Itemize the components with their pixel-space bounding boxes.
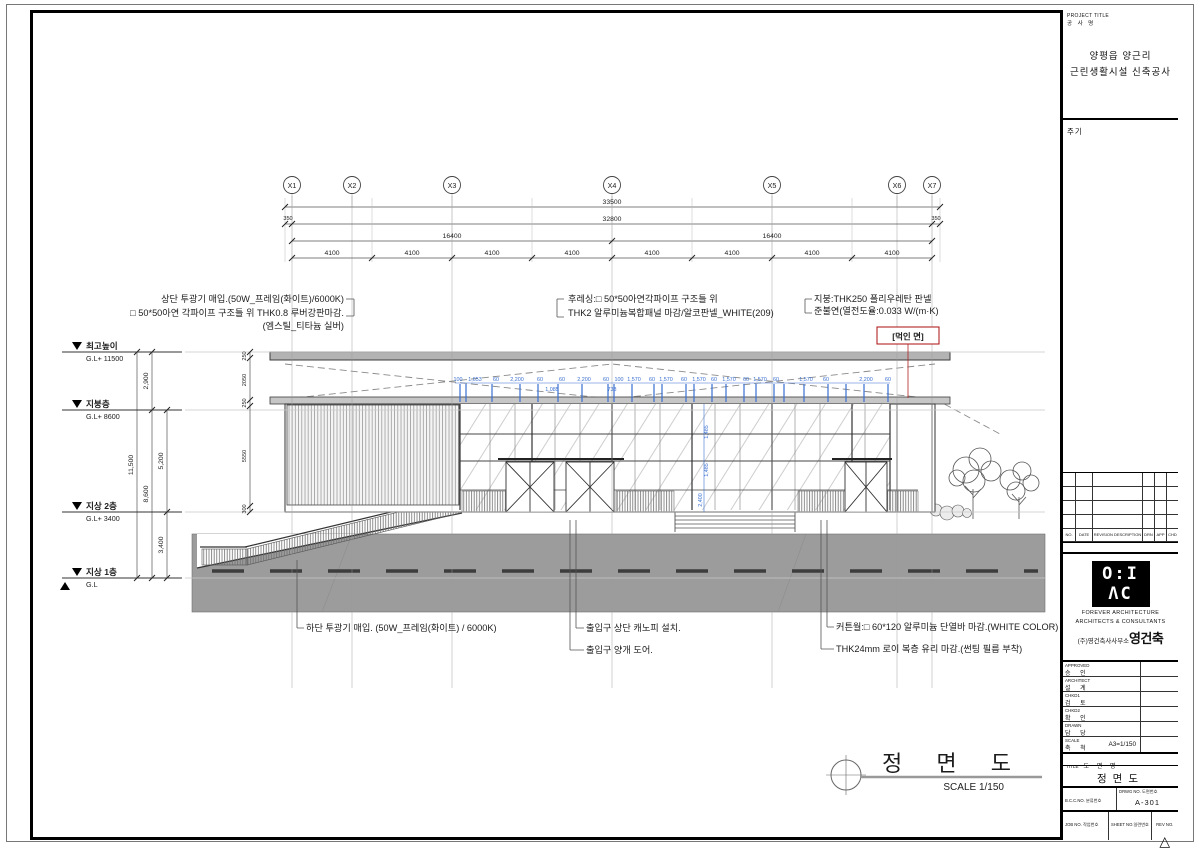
- level-elevation: G.L: [86, 580, 98, 589]
- mullion-dim: 60: [493, 377, 499, 383]
- project-name-line1: 양평읍 양근리: [1067, 49, 1174, 65]
- mullion-dim: 100: [454, 377, 463, 383]
- annotation-text: 커튼월:□ 60*120 알루미늄 단열바 마감.(WHITE COLOR): [836, 621, 1058, 632]
- annotation-text: 상단 투광기 매입.(50W_프레임(화이트)/6000K): [161, 293, 344, 304]
- annotation-text: THK24mm 로이 복층 유리 마감.(썬팅 필름 부착): [836, 643, 1022, 654]
- level-name: 최고높이: [86, 340, 118, 351]
- mullion-dim: 60: [885, 377, 891, 383]
- signoff-architect: ARCHITECT설 계: [1063, 677, 1178, 692]
- grid-bubble-label: X7: [928, 181, 937, 190]
- signoff-chkd1: CHKD1검 토: [1063, 692, 1178, 707]
- title-block: PROJECT TITLE 공 사 명 양평읍 양근리 근린생활시설 신축공사 …: [1060, 10, 1178, 840]
- rev-col-chd: CHD: [1167, 529, 1178, 542]
- highlight-red-box: [먹인 면]: [877, 327, 939, 398]
- rev-col-app: APP: [1155, 529, 1167, 542]
- signoff-kr: 검 토: [1065, 698, 1138, 707]
- job-label-en: JOB NO.: [1065, 822, 1082, 827]
- annotation-text: (엠스틸_티타늄 실버): [263, 320, 344, 331]
- dim-bay: 4100: [564, 250, 579, 257]
- dim-bay: 4100: [884, 250, 899, 257]
- dim-total: 33500: [603, 199, 622, 206]
- dim-bay: 4100: [644, 250, 659, 257]
- dim-parapet-left: 350: [283, 216, 292, 222]
- mullion-dim: 2,200: [577, 377, 591, 383]
- firm-logotype-kr: 영건축: [1129, 631, 1163, 646]
- vertical-dim: 2,400: [698, 493, 704, 507]
- notes-cell: 주기: [1063, 122, 1178, 470]
- drwg-label-en: DRWG NO.: [1119, 789, 1141, 794]
- grid-bubble-label: X1: [288, 181, 297, 190]
- level-name: 지붕층: [86, 398, 110, 409]
- signoff-kr: 확 인: [1065, 713, 1138, 722]
- mullion-dim-lower: 733: [608, 387, 617, 393]
- title-label-row: TITLE도 면 명: [1063, 752, 1178, 766]
- mullion-dim: 60: [537, 377, 543, 383]
- revision-table: NO. DATE REVISION DESCRIPTION DRN APP CH…: [1063, 472, 1178, 543]
- dim-bay: 4100: [804, 250, 819, 257]
- entry-stairs: [675, 512, 795, 532]
- sheet-label-kr: 일련번호: [1134, 822, 1149, 827]
- job-label-kr: 작업번호: [1083, 822, 1098, 827]
- drwg-label-kr: 도면번호: [1142, 789, 1157, 794]
- mullion-dim: 100: [615, 377, 624, 383]
- dim-small: 5550: [242, 450, 248, 462]
- dim-bay: 4100: [724, 250, 739, 257]
- level-elevation: G.L+ 8600: [86, 412, 120, 421]
- dim-bay: 4100: [484, 250, 499, 257]
- firm-logo-top: O:I: [1092, 564, 1150, 584]
- project-name: 양평읍 양근리 근린생활시설 신축공사: [1067, 49, 1174, 81]
- sheet-no-cell: SHEET NO.일련번호: [1109, 812, 1152, 840]
- signoff-rows: APPROVED승 인 ARCHITECT설 계 CHKD1검 토 CHKD2확…: [1063, 662, 1178, 752]
- mullion-dim: 2,200: [859, 377, 873, 383]
- dim-half: 16400: [763, 233, 782, 240]
- rev-col-drn: DRN: [1143, 529, 1155, 542]
- view-scale: SCALE 1/150: [943, 782, 1004, 793]
- grid-bubble-label: X4: [608, 181, 617, 190]
- signoff-scale: SCALE축 척 A3=1/150: [1063, 737, 1178, 752]
- signoff-kr: 승 인: [1065, 668, 1138, 677]
- annotation-text: 지붕:THK250 폴리우레탄 판넬: [814, 293, 931, 304]
- view-title: 정 면 도: [882, 751, 1025, 776]
- building-elevation: [270, 352, 1000, 512]
- firm-logo-bottom: ΛC: [1092, 584, 1150, 604]
- drawing-sheet: X1 X2 X3 X4 X5 X6 X7 33500 350 32800 350…: [0, 0, 1200, 849]
- grid-bubble-label: X5: [768, 181, 777, 190]
- elevation-drawing: X1 X2 X3 X4 X5 X6 X7 33500 350 32800 350…: [30, 10, 1060, 840]
- trees: [930, 448, 1039, 520]
- signoff-approved: APPROVED승 인: [1063, 662, 1178, 677]
- sheet-label-en: SHEET NO.: [1111, 822, 1134, 827]
- vertical-dim: 1,485: [704, 463, 710, 477]
- mullion-dim-lower: 1,085: [545, 387, 559, 393]
- dim-small: 250: [242, 351, 248, 360]
- mullion-dim: 1,570: [753, 377, 767, 383]
- firm-logo-icon: O:I ΛC: [1092, 561, 1150, 607]
- revision-triangle-icon: △: [1154, 833, 1176, 849]
- mullion-dim: 1,570: [659, 377, 673, 383]
- mullion-dim: 1,653: [468, 377, 482, 383]
- signoff-value: A3=1/150: [1108, 741, 1136, 748]
- job-no-cell: JOB NO. 작업번호: [1063, 812, 1109, 840]
- bcc-no-cell: B.C.C.NO. 분류번호: [1063, 788, 1117, 810]
- dim-small: 2050: [242, 374, 248, 386]
- dim-bay: 4100: [404, 250, 419, 257]
- bcc-label-kr: 분류번호: [1086, 798, 1101, 803]
- mullion-dim: 60: [649, 377, 655, 383]
- number-row-2: JOB NO. 작업번호 SHEET NO.일련번호 REV NO. △: [1063, 810, 1178, 840]
- annotation-text: 출입구 양개 도어.: [586, 644, 653, 655]
- dim-height-total: 11,500: [128, 455, 135, 476]
- mullion-dim: 60: [823, 377, 829, 383]
- mullion-dim: 60: [773, 377, 779, 383]
- annotation-text: 후레싱:□ 50*50아연각파이프 구조틀 위: [568, 293, 718, 304]
- firm-cell: O:I ΛC FOREVER ARCHITECTURE ARCHITECTS &…: [1063, 552, 1178, 662]
- drawing-title-value: 정면도: [1063, 766, 1178, 786]
- signoff-drawn: DRAWN담 당: [1063, 722, 1178, 737]
- rev-col-desc: REVISION DESCRIPTION: [1093, 529, 1143, 542]
- project-name-line2: 근린생활시설 신축공사: [1067, 65, 1174, 81]
- mullion-dim: 60: [711, 377, 717, 383]
- signoff-chkd2: CHKD2확 인: [1063, 707, 1178, 722]
- dim-height-upper: 2,900: [143, 372, 150, 389]
- grid-bubble-label: X6: [893, 181, 902, 190]
- mullion-dim: 1,570: [627, 377, 641, 383]
- eave-band: [270, 397, 950, 404]
- dim-small: 300: [242, 504, 248, 513]
- mullion-dim: 2,200: [510, 377, 524, 383]
- louver-screen: [287, 405, 459, 505]
- project-label-kr: 공 사 명: [1067, 19, 1174, 27]
- number-row-1: B.C.C.NO. 분류번호 DRWG NO. 도면번호 A-301: [1063, 786, 1178, 810]
- mullion-dim: 60: [559, 377, 565, 383]
- project-title-cell: PROJECT TITLE 공 사 명 양평읍 양근리 근린생활시설 신축공사: [1063, 10, 1178, 120]
- dim-height-lower: 3,400: [158, 536, 165, 553]
- grid-bubble-label: X3: [448, 181, 457, 190]
- mullion-dim: 1,570: [722, 377, 736, 383]
- drawing-number: A-301: [1119, 798, 1176, 807]
- mullion-dim: 60: [603, 377, 609, 383]
- dim-height-mid: 5,200: [158, 452, 165, 469]
- drawing-title-mark: 정 면 도 SCALE 1/150: [826, 751, 1042, 795]
- dim-small: 250: [242, 398, 248, 407]
- annotation-text: 하단 투광기 매입. (50W_프레임(화이트) / 6000K): [306, 622, 497, 633]
- dim-parapet-right: 350: [931, 216, 940, 222]
- dim-half: 16400: [443, 233, 462, 240]
- firm-name-en2: ARCHITECTS & CONSULTANTS: [1063, 619, 1178, 625]
- rev-col-date: DATE: [1076, 529, 1093, 542]
- notes-label: 주기: [1067, 126, 1174, 137]
- level-name: 지상 2층: [86, 500, 117, 511]
- rev-no-cell: REV NO. △: [1152, 812, 1178, 840]
- vertical-dim: 1,485: [704, 425, 710, 439]
- highlight-label: [먹인 면]: [892, 332, 924, 342]
- rev-col-no: NO.: [1063, 529, 1076, 542]
- signoff-kr: 설 계: [1065, 683, 1138, 692]
- road-section: [192, 513, 1045, 612]
- grid-bubble-label: X2: [348, 181, 357, 190]
- annotation-text: □ 50*50아연 각파이프 구조틀 위 THK0.8 루버강판마감.: [130, 307, 344, 318]
- annotation-text: THK2 알루미늄복합패널 마감/알코판넬_WHITE(209): [568, 307, 774, 318]
- level-name: 지상 1층: [86, 566, 117, 577]
- drwg-no-cell: DRWG NO. 도면번호 A-301: [1117, 788, 1178, 810]
- mullion-dim: 1,570: [692, 377, 706, 383]
- top-dimension-chains: 33500 350 32800 350 16400 16400 4100 410…: [282, 198, 943, 262]
- rev-label-en: REV NO.: [1156, 822, 1173, 827]
- signoff-kr: 담 당: [1065, 728, 1138, 737]
- dim-height-roof: 8,600: [143, 485, 150, 502]
- annotation-text: 출입구 상단 캐노피 설치.: [586, 622, 681, 633]
- bcc-label-en: B.C.C.NO.: [1065, 798, 1085, 803]
- firm-office-kr: (주)영건축사사무소: [1078, 638, 1129, 645]
- level-elevation: G.L+ 11500: [86, 354, 123, 363]
- dim-body: 32800: [603, 216, 622, 223]
- parapet-band: [270, 352, 950, 360]
- firm-name-en1: FOREVER ARCHITECTURE: [1063, 610, 1178, 616]
- level-elevation: G.L+ 3400: [86, 514, 120, 523]
- mullion-dim: 60: [743, 377, 749, 383]
- dim-bay: 4100: [324, 250, 339, 257]
- mullion-dim: 1,570: [799, 377, 813, 383]
- mullion-dim: 60: [681, 377, 687, 383]
- annotation-text: 준불연(열전도율:0.033 W/(m·K): [814, 306, 939, 316]
